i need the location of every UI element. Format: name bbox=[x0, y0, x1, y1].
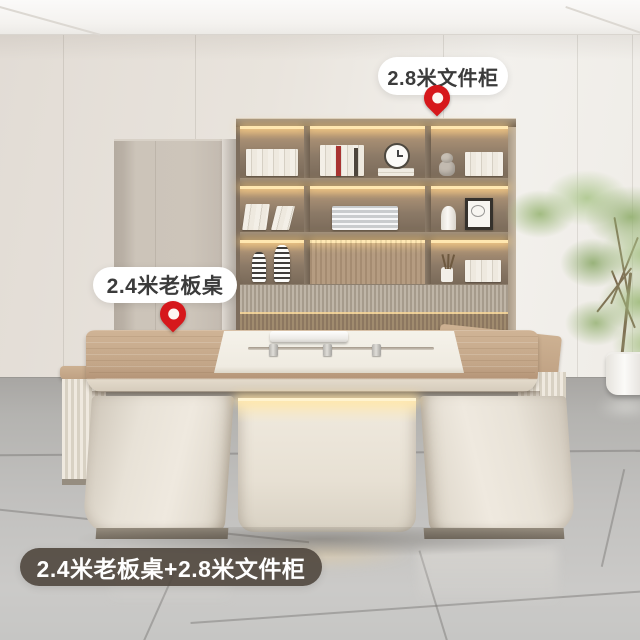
book-stack bbox=[378, 168, 414, 176]
ceiling bbox=[0, 0, 640, 35]
picture-frame bbox=[465, 198, 493, 230]
sliding-wood-panel bbox=[310, 240, 425, 284]
reed-diffuser bbox=[441, 267, 453, 282]
desk-grommet bbox=[269, 344, 278, 356]
leaning-books bbox=[271, 206, 295, 230]
document-trays bbox=[332, 206, 398, 230]
striped-vase bbox=[274, 245, 290, 282]
floor-reflection bbox=[418, 548, 558, 608]
shelf-compartment bbox=[431, 240, 508, 284]
plant-pot bbox=[606, 352, 640, 395]
clock bbox=[384, 143, 410, 169]
desk-right-pedestal bbox=[420, 396, 576, 534]
desk-size-tag-label: 2.4米老板桌 bbox=[107, 270, 224, 300]
shelf-compartment bbox=[431, 186, 508, 232]
fluted-drawer-band bbox=[240, 284, 508, 315]
shelf-compartment bbox=[431, 126, 508, 178]
laptop bbox=[270, 331, 348, 342]
desk-center-recess-led bbox=[238, 398, 416, 532]
books bbox=[465, 260, 501, 282]
shelf-compartment bbox=[310, 126, 425, 178]
bear-figurine-head bbox=[441, 153, 453, 163]
desk-grommet bbox=[323, 344, 332, 356]
wall-seam bbox=[63, 34, 64, 377]
pot-floor-reflection bbox=[596, 396, 640, 418]
desk-left-pedestal bbox=[82, 396, 234, 534]
dark-book bbox=[354, 148, 358, 176]
wall-seam bbox=[195, 34, 196, 144]
shelf-compartment bbox=[310, 186, 425, 232]
striped-vase bbox=[252, 252, 266, 282]
shelf-compartment bbox=[240, 240, 304, 284]
books bbox=[465, 152, 503, 176]
shelf-board bbox=[240, 178, 508, 186]
leaning-books bbox=[242, 204, 270, 230]
vase bbox=[441, 206, 456, 230]
desk-grommet bbox=[372, 344, 381, 356]
bundle-name-tag: 2.4米老板桌+2.8米文件柜 bbox=[20, 548, 322, 586]
shelf-compartment bbox=[240, 126, 304, 178]
shelf-board bbox=[240, 232, 508, 240]
bear-figurine bbox=[439, 161, 455, 176]
file-cabinet-bookshelf bbox=[236, 118, 516, 336]
desk-top bbox=[86, 330, 538, 392]
shelf-compartment bbox=[240, 186, 304, 232]
product-showcase-image: 2.8米文件柜 2.4米老板桌 2.4米老板桌+2.8米文件柜 bbox=[0, 0, 640, 640]
wall-shadow bbox=[0, 34, 640, 60]
books bbox=[246, 149, 298, 176]
red-book bbox=[336, 146, 341, 176]
bundle-name-tag-label: 2.4米老板桌+2.8米文件柜 bbox=[37, 550, 306, 584]
desk-size-tag: 2.4米老板桌 bbox=[93, 267, 237, 303]
